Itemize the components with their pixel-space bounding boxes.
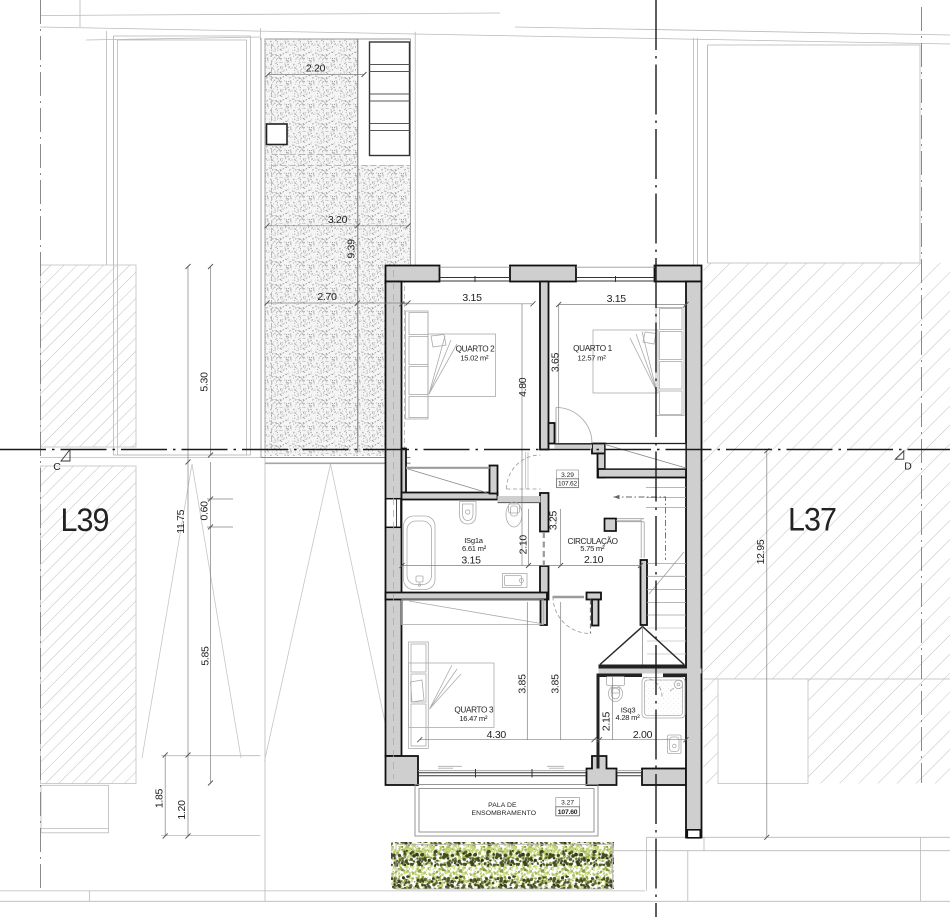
svg-text:3.15: 3.15 bbox=[461, 554, 481, 566]
svg-text:4.28 m²: 4.28 m² bbox=[616, 713, 641, 722]
svg-text:3.25: 3.25 bbox=[548, 510, 560, 530]
svg-text:2.20: 2.20 bbox=[306, 63, 326, 75]
svg-text:3.65: 3.65 bbox=[550, 352, 562, 372]
svg-text:11.75: 11.75 bbox=[175, 509, 187, 533]
svg-text:2.10: 2.10 bbox=[584, 554, 604, 566]
svg-text:2.10: 2.10 bbox=[517, 535, 529, 555]
svg-text:15.02 m²: 15.02 m² bbox=[460, 354, 489, 363]
svg-text:L39: L39 bbox=[61, 502, 109, 538]
svg-text:3.29: 3.29 bbox=[561, 472, 574, 479]
svg-text:9.39: 9.39 bbox=[346, 239, 358, 259]
svg-text:107.62: 107.62 bbox=[558, 481, 578, 488]
svg-text:12.57 m²: 12.57 m² bbox=[578, 353, 607, 362]
svg-text:1.85: 1.85 bbox=[153, 788, 165, 808]
svg-text:12.95: 12.95 bbox=[755, 539, 767, 564]
svg-text:L37: L37 bbox=[788, 502, 836, 538]
svg-text:3.20: 3.20 bbox=[328, 214, 348, 226]
svg-text:3.85: 3.85 bbox=[516, 674, 528, 694]
svg-text:5.75 m²: 5.75 m² bbox=[580, 544, 605, 553]
svg-text:ENSOMBRAMENTO: ENSOMBRAMENTO bbox=[471, 810, 536, 817]
svg-text:107.60: 107.60 bbox=[558, 809, 578, 816]
svg-text:2.00: 2.00 bbox=[633, 729, 653, 741]
svg-text:2.15: 2.15 bbox=[600, 711, 612, 731]
svg-text:0.60: 0.60 bbox=[198, 501, 210, 521]
svg-text:QUARTO 1: QUARTO 1 bbox=[573, 344, 613, 353]
svg-text:3.27: 3.27 bbox=[561, 800, 574, 807]
svg-text:3.15: 3.15 bbox=[607, 293, 627, 305]
svg-text:6.61 m²: 6.61 m² bbox=[462, 544, 487, 553]
svg-text:5.85: 5.85 bbox=[199, 646, 211, 666]
svg-text:3.15: 3.15 bbox=[462, 292, 482, 304]
svg-text:5.30: 5.30 bbox=[199, 372, 211, 392]
svg-text:C: C bbox=[53, 461, 61, 473]
svg-text:1.20: 1.20 bbox=[176, 800, 188, 820]
svg-text:QUARTO 2: QUARTO 2 bbox=[456, 344, 496, 353]
svg-text:D: D bbox=[904, 461, 912, 473]
svg-text:2.70: 2.70 bbox=[317, 291, 337, 303]
svg-text:3.85: 3.85 bbox=[550, 674, 562, 694]
svg-text:4.30: 4.30 bbox=[487, 729, 507, 741]
svg-text:16.47 m²: 16.47 m² bbox=[459, 714, 488, 723]
svg-text:PALA DE: PALA DE bbox=[488, 802, 517, 809]
svg-text:4.80: 4.80 bbox=[517, 377, 529, 397]
